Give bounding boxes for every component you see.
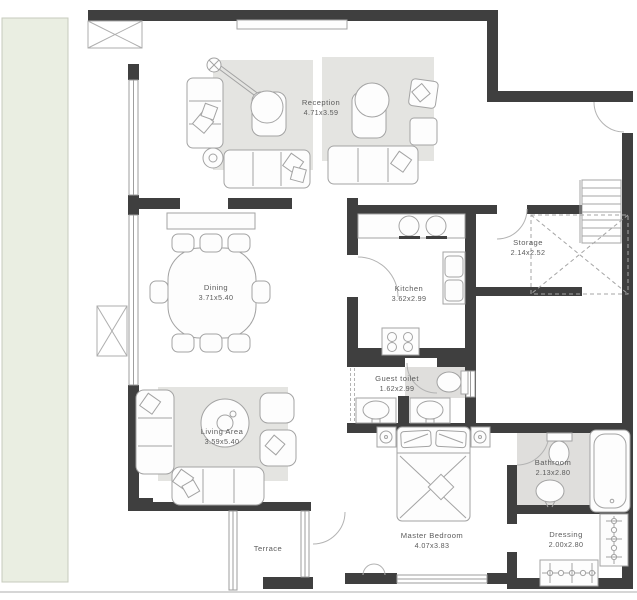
chair	[172, 334, 194, 352]
kitchen-door-arc	[358, 257, 398, 297]
arc-lamp-shade	[251, 91, 283, 123]
svg-text:1.62x2.99: 1.62x2.99	[380, 384, 415, 393]
stove	[382, 328, 419, 355]
sink	[399, 216, 419, 236]
storage-door-arc	[497, 209, 527, 239]
bathtub-inner	[594, 434, 626, 508]
chair	[200, 234, 222, 252]
armchair-seat	[355, 83, 389, 117]
svg-text:Living Area: Living Area	[201, 427, 244, 436]
label-guest-toilet: Guest toilet 1.62x2.99	[375, 374, 419, 393]
toilet-tank	[461, 371, 468, 394]
chair	[150, 281, 168, 303]
pouf	[410, 118, 437, 145]
svg-text:Kitchen: Kitchen	[395, 284, 423, 293]
master-bedroom-door-arc	[313, 512, 345, 544]
floor-plan-svg: Reception 4.71x3.59 Dining 3.71x5.40 Kit…	[0, 0, 637, 600]
chair	[172, 234, 194, 252]
console-table	[237, 20, 347, 29]
appliance	[445, 280, 463, 301]
chair	[228, 334, 250, 352]
label-terrace: Terrace	[254, 544, 282, 553]
svg-text:4.07x3.83: 4.07x3.83	[415, 541, 450, 550]
svg-text:Bathroom: Bathroom	[535, 458, 572, 467]
svg-text:Reception: Reception	[302, 98, 340, 107]
chair	[200, 334, 222, 352]
label-kitchen: Kitchen 3.62x2.99	[392, 284, 427, 303]
master-bedroom-furniture	[377, 427, 490, 521]
master-bedroom-window	[397, 575, 487, 583]
svg-text:2.00x2.80: 2.00x2.80	[549, 540, 584, 549]
svg-text:Storage: Storage	[513, 238, 543, 247]
label-bathroom: Bathroom 2.13x2.80	[535, 458, 572, 477]
terrace-sliding-door	[301, 511, 309, 577]
chair	[252, 281, 270, 303]
furniture	[136, 20, 630, 586]
dining-window	[129, 215, 138, 385]
svg-text:3.71x5.40: 3.71x5.40	[199, 293, 234, 302]
toilet-tank	[547, 433, 572, 441]
appliance	[445, 256, 463, 277]
label-storage: Storage 2.14x2.52	[511, 238, 546, 257]
sink	[426, 216, 446, 236]
svg-text:Master Bedroom: Master Bedroom	[401, 531, 463, 540]
svg-text:Dressing: Dressing	[549, 530, 583, 539]
svg-text:4.71x3.59: 4.71x3.59	[304, 108, 339, 117]
chair	[228, 234, 250, 252]
pedestal-sink	[536, 480, 564, 502]
svg-text:Dining: Dining	[204, 283, 228, 292]
toilet-bowl	[437, 372, 461, 392]
basin	[363, 401, 389, 419]
dressing-furniture	[540, 514, 628, 586]
label-reception: Reception 4.71x3.59	[302, 98, 340, 117]
svg-text:3.62x2.99: 3.62x2.99	[392, 294, 427, 303]
entrance-door-arc	[594, 102, 624, 132]
terrace-railing	[229, 511, 237, 590]
label-living-area: Living Area 3.59x5.40	[201, 427, 244, 446]
label-master-bedroom: Master Bedroom 4.07x3.83	[401, 531, 463, 550]
svg-text:Guest toilet: Guest toilet	[375, 374, 419, 383]
svg-text:3.59x5.40: 3.59x5.40	[205, 437, 240, 446]
label-dressing: Dressing 2.00x2.80	[549, 530, 584, 549]
buffet	[167, 213, 255, 229]
column-top-left	[88, 21, 142, 48]
staircase	[531, 180, 628, 294]
drain	[610, 499, 614, 503]
cushion	[290, 167, 306, 183]
floor-plan-page: Reception 4.71x3.59 Dining 3.71x5.40 Kit…	[0, 0, 637, 600]
svg-text:2.13x2.80: 2.13x2.80	[536, 468, 571, 477]
svg-text:Terrace: Terrace	[254, 544, 282, 553]
svg-text:2.14x2.52: 2.14x2.52	[511, 248, 546, 257]
basin	[417, 401, 443, 419]
armchair	[260, 393, 294, 423]
reception-window	[129, 80, 138, 195]
column-left-middle	[97, 306, 127, 356]
